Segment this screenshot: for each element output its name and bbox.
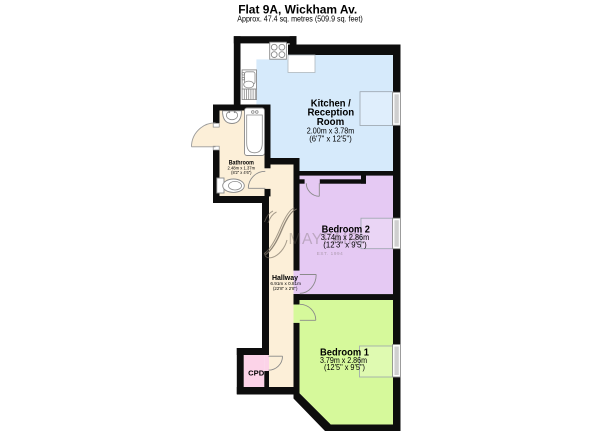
svg-text:(12'3" x 9'5"): (12'3" x 9'5") [323,240,367,249]
svg-text:(22'8" x 2'8"): (22'8" x 2'8") [273,286,298,291]
svg-text:Approx. 47.4 sq. metres (509.9: Approx. 47.4 sq. metres (509.9 sq. feet) [237,15,363,24]
svg-text:EST. 1994: EST. 1994 [317,251,344,256]
svg-text:(8'2" x 4'6"): (8'2" x 4'6") [231,170,252,175]
svg-text:(6'7" x 12'5"): (6'7" x 12'5") [309,135,352,144]
svg-text:CPD: CPD [248,368,265,377]
svg-text:(12'5" x 9'5"): (12'5" x 9'5") [324,363,365,372]
